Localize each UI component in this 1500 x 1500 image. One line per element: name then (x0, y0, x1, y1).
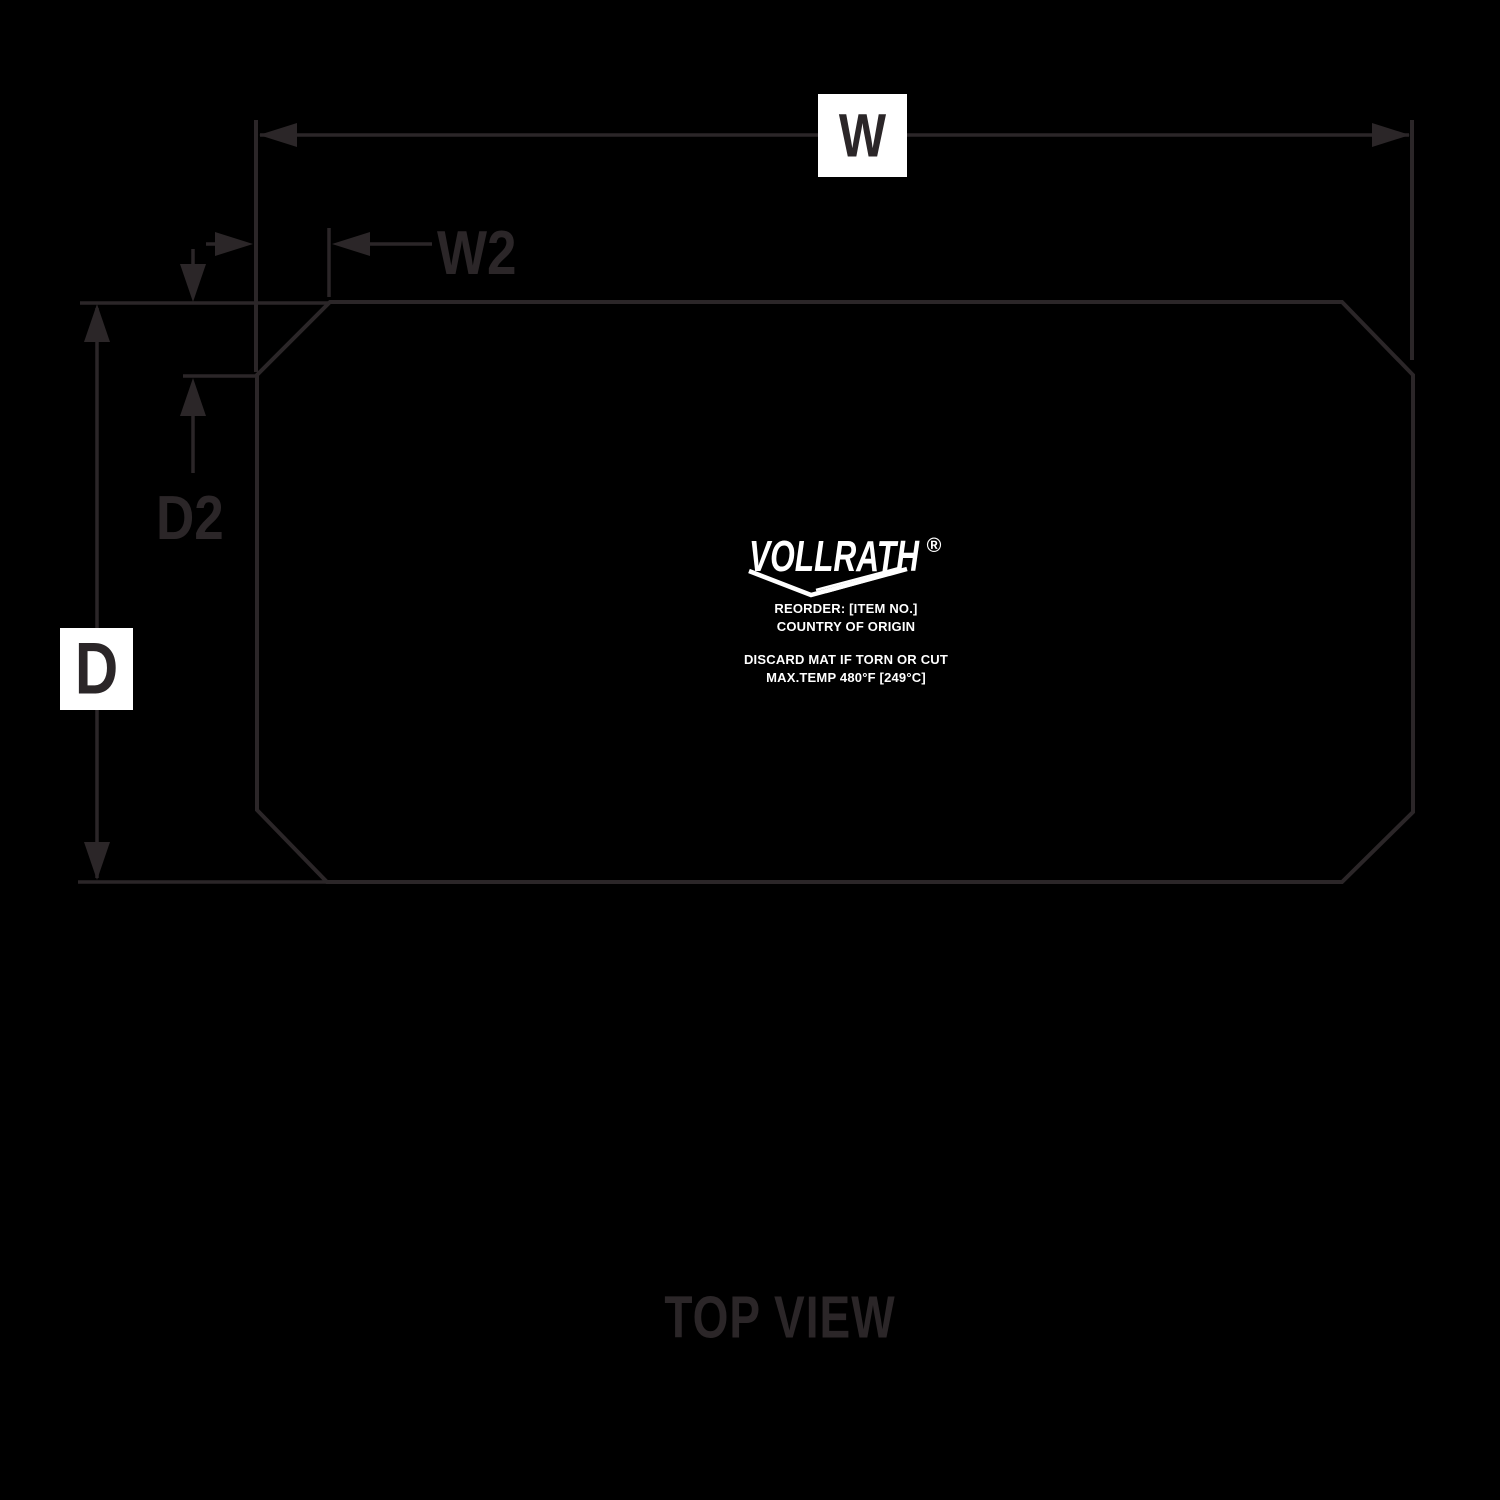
reorder-line: REORDER: [ITEM NO.] (740, 600, 952, 618)
w-label-box: W (818, 94, 907, 177)
diagram-canvas: W D W2 D2 VOLLRATH ® REORDER: [ITEM NO.]… (0, 0, 1500, 1500)
w-dimension-label: W (839, 105, 886, 166)
w2-dimension-label: W2 (437, 222, 517, 285)
d2-arrowhead-top (180, 264, 206, 302)
vollrath-logo: VOLLRATH ® (746, 534, 946, 600)
d-arrowhead-top (84, 304, 110, 342)
d2-arrowhead-bottom (180, 378, 206, 416)
d-dimension-label: D (75, 632, 118, 705)
mat-print-block: VOLLRATH ® REORDER: [ITEM NO.] COUNTRY O… (740, 534, 952, 687)
d2-dimension-label: D2 (156, 487, 224, 550)
top-view-caption: TOP VIEW (0, 1287, 1500, 1347)
w2-arrowhead-left (215, 232, 253, 256)
max-temp-line: MAX.TEMP 480°F [249°C] (740, 669, 952, 687)
reorder-text-group: REORDER: [ITEM NO.] COUNTRY OF ORIGIN (740, 600, 952, 636)
d-label-box: D (60, 628, 133, 710)
w-arrowhead-left (259, 123, 297, 147)
registered-mark: ® (927, 535, 942, 557)
warning-text-group: DISCARD MAT IF TORN OR CUT MAX.TEMP 480°… (740, 651, 952, 687)
dimension-diagram (0, 0, 1500, 1500)
origin-line: COUNTRY OF ORIGIN (740, 618, 952, 636)
d-arrowhead-bottom (84, 842, 110, 880)
discard-line: DISCARD MAT IF TORN OR CUT (740, 651, 952, 669)
w-arrowhead-right (1372, 123, 1410, 147)
w2-arrowhead-right (332, 232, 370, 256)
